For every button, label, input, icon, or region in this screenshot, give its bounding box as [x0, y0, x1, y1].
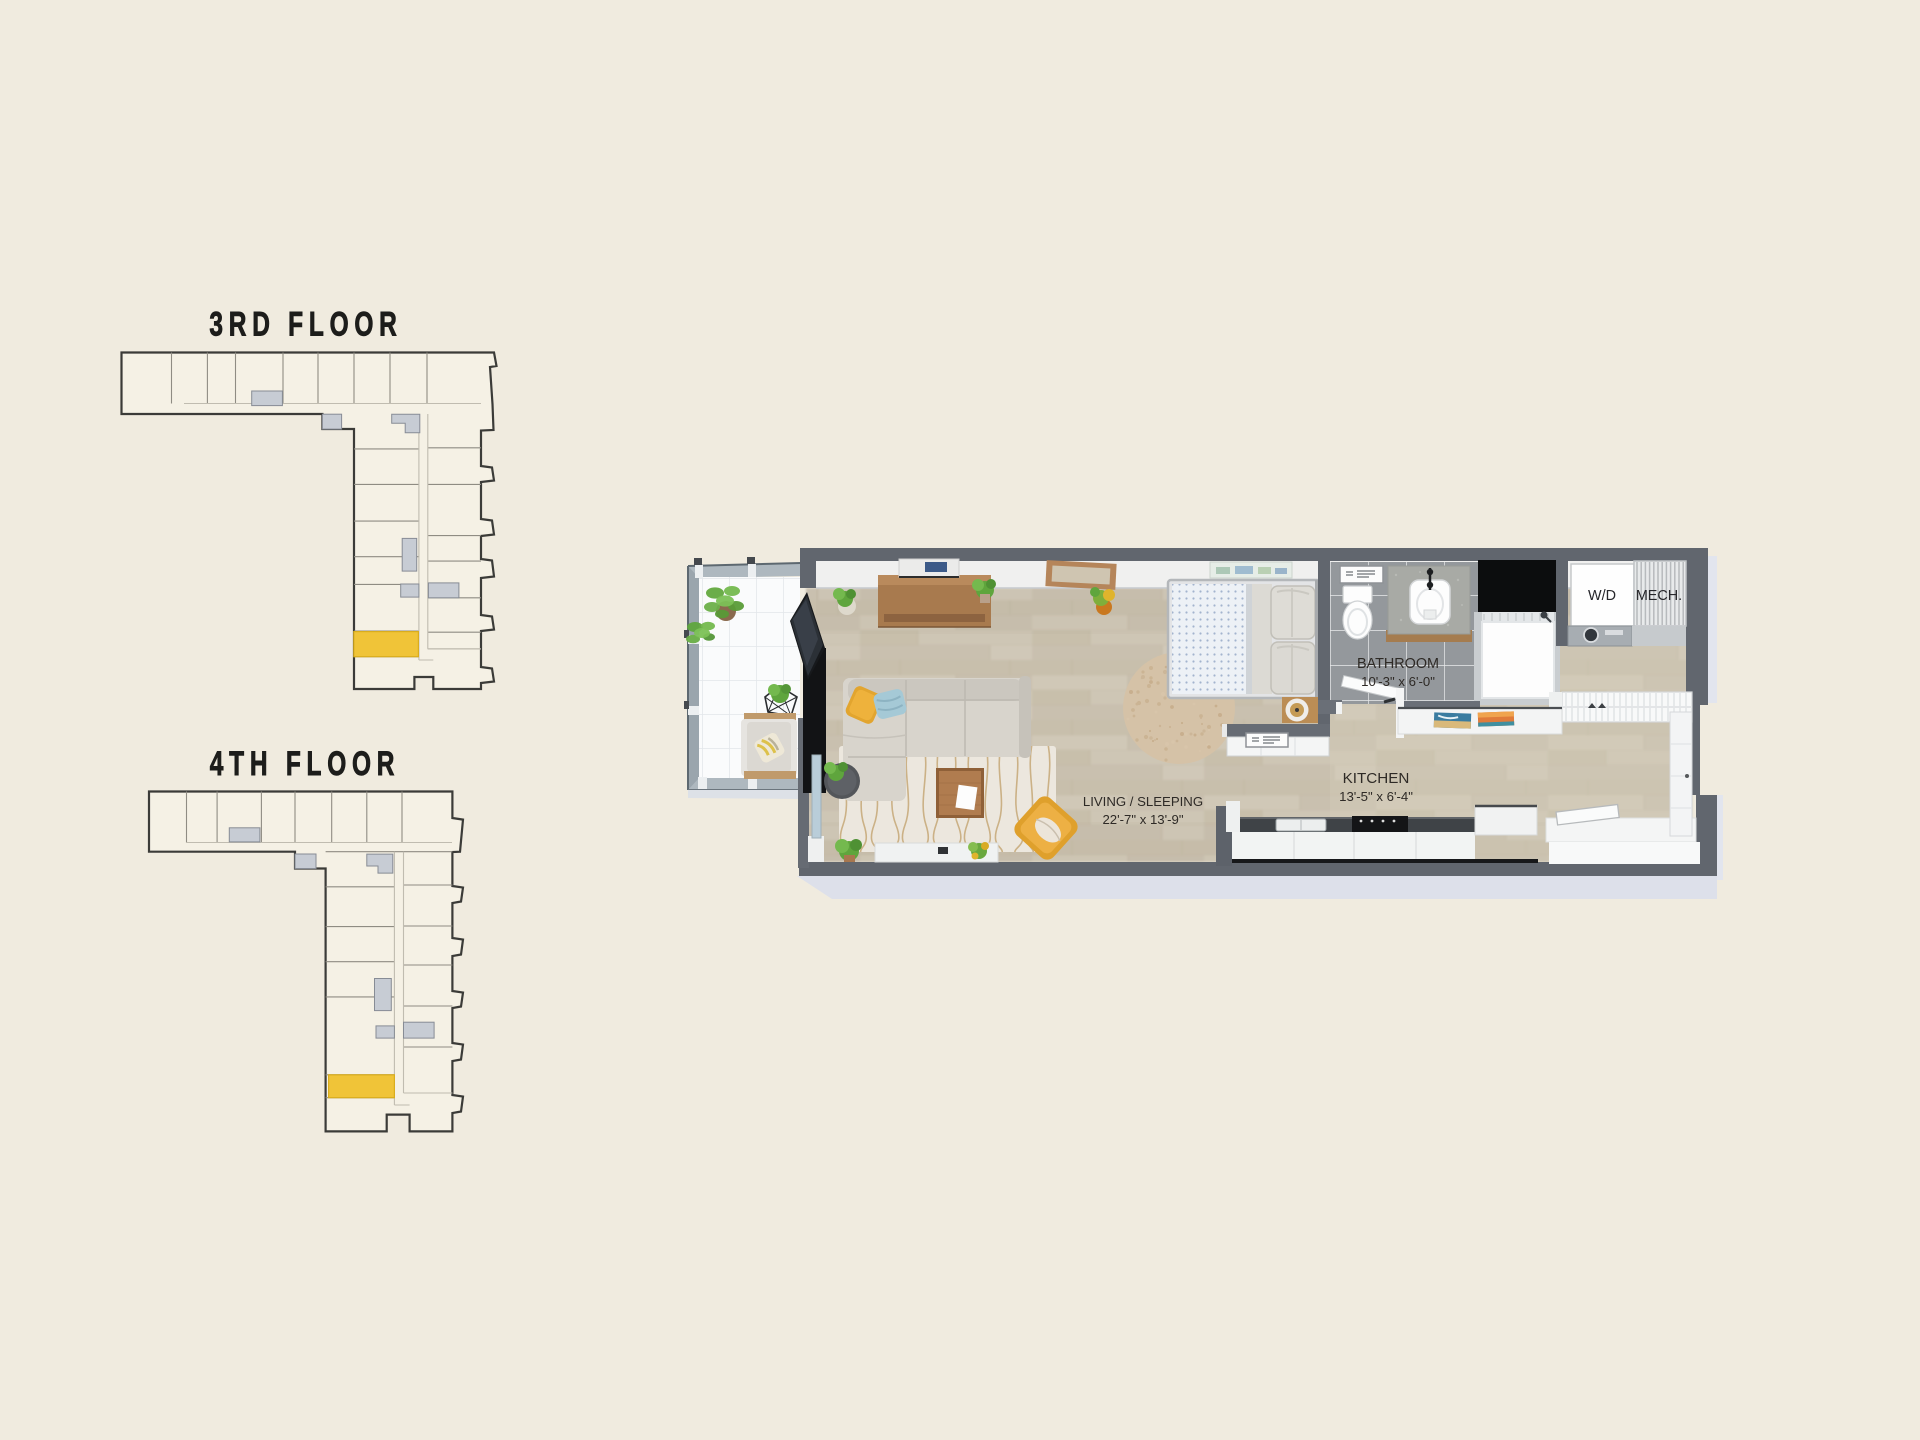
svg-text:BATHROOM: BATHROOM: [1357, 656, 1439, 672]
svg-text:13'-5" x 6'-4": 13'-5" x 6'-4": [1339, 789, 1413, 804]
svg-text:W/D: W/D: [1588, 588, 1616, 604]
svg-text:KITCHEN: KITCHEN: [1343, 770, 1410, 787]
svg-text:22'-7" x 13'-9": 22'-7" x 13'-9": [1102, 812, 1183, 827]
svg-text:MECH.: MECH.: [1636, 588, 1682, 604]
svg-text:4TH FLOOR: 4TH FLOOR: [210, 745, 400, 783]
svg-text:10'-3" x 6'-0": 10'-3" x 6'-0": [1361, 674, 1435, 689]
svg-text:LIVING / SLEEPING: LIVING / SLEEPING: [1083, 794, 1203, 809]
svg-text:3RD FLOOR: 3RD FLOOR: [209, 305, 402, 343]
